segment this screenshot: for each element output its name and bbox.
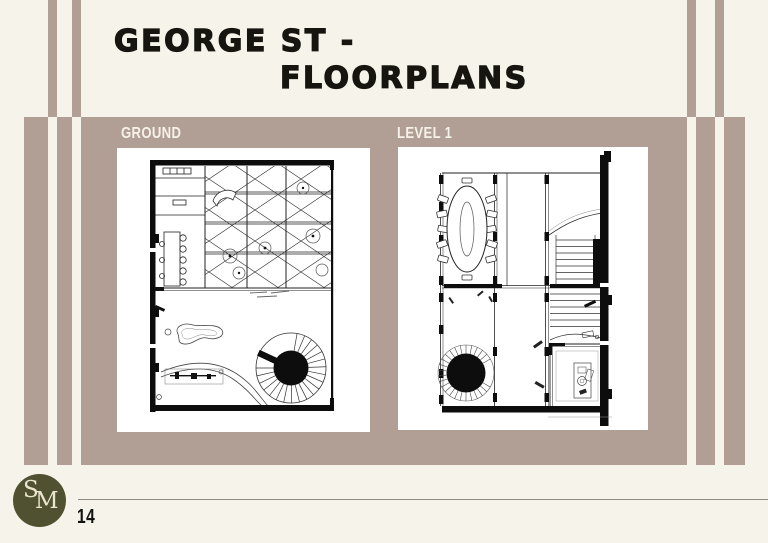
- ground-floorplan-image: [117, 148, 370, 432]
- spiral-staircase: [256, 333, 326, 403]
- lattice-ceiling-grid: [205, 166, 332, 288]
- conference-table: [436, 178, 497, 280]
- curved-ramp: [161, 363, 269, 407]
- accent-bar-right-1: [687, 0, 696, 117]
- ground-plan-card: [117, 148, 370, 432]
- footer-divider-line: [78, 499, 768, 500]
- accent-bar-left-2: [72, 0, 81, 117]
- panel-stripe-right-1: [687, 117, 696, 465]
- logo-letter-m: M: [35, 490, 59, 513]
- bench-equipment: [170, 372, 216, 379]
- ground-plan-label: GROUND: [121, 125, 181, 143]
- page-number: 14: [77, 506, 95, 529]
- accent-bar-right-2: [715, 0, 724, 117]
- organic-blob-feature: [165, 324, 223, 344]
- ground-left-rooms: [155, 168, 205, 286]
- panel-stripe-left-1: [48, 117, 57, 465]
- level1-floorplan-image: [398, 147, 648, 430]
- slide-title-line2: FLOORPLANS: [280, 63, 529, 95]
- level1-plan-label: LEVEL 1: [397, 125, 452, 143]
- bathroom: [549, 343, 601, 406]
- spiral-staircase: [438, 345, 494, 401]
- level1-plan-card: [398, 147, 648, 430]
- panel-stripe-left-2: [72, 117, 81, 465]
- slide-title-line1: GEORGE ST -: [114, 26, 356, 58]
- logo-monogram: S M: [13, 474, 66, 527]
- slide: GEORGE ST - FLOORPLANS GROUND LEVEL 1: [0, 0, 768, 543]
- accent-bar-left-1: [48, 0, 57, 117]
- panel-stripe-right-2: [715, 117, 724, 465]
